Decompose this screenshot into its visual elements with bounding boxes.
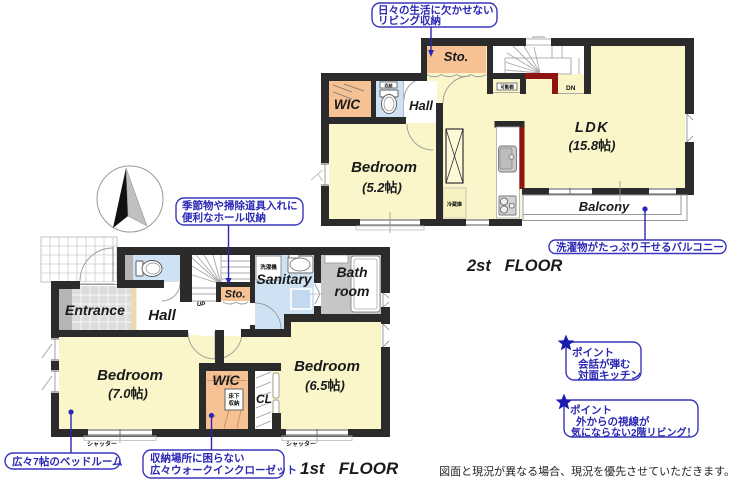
svg-text:外からの視線が: 外からの視線が [575,415,650,428]
svg-text:収納: 収納 [228,399,240,407]
svg-text:Sto.: Sto. [444,49,469,64]
svg-text:Bedroom: Bedroom [294,358,360,375]
svg-text:気にならない2階リビング！: 気にならない2階リビング！ [570,426,697,439]
svg-text:(7.0帖): (7.0帖) [108,386,148,401]
svg-text:広々7帖のベッドルーム: 広々7帖のベッドルーム [12,455,123,468]
svg-text:DN: DN [566,85,576,92]
svg-text:LDK: LDK [575,120,609,136]
svg-text:(6.5帖): (6.5帖) [305,378,345,393]
svg-text:季節物や掃除道具入れに: 季節物や掃除道具入れに [181,199,298,212]
svg-text:シャッター: シャッター [286,440,316,448]
svg-text:2st FLOOR: 2st FLOOR [466,257,562,275]
svg-text:洗濯機: 洗濯機 [260,263,277,271]
svg-text:1st FLOOR: 1st FLOOR [300,459,399,478]
svg-text:Bath: Bath [336,264,367,280]
svg-text:Sanitary: Sanitary [256,271,312,287]
svg-text:Bedroom: Bedroom [351,159,417,176]
svg-text:対面キッチン: 対面キッチン [577,369,641,382]
svg-text:Hall: Hall [409,98,433,113]
svg-text:シャッター: シャッター [87,440,117,448]
svg-text:Balcony: Balcony [579,199,630,214]
svg-text:広々ウォークインクローゼット: 広々ウォークインクローゼット [150,464,297,477]
svg-text:冷蔵庫: 冷蔵庫 [447,201,462,208]
svg-text:Entrance: Entrance [65,302,125,318]
svg-text:(5.2帖): (5.2帖) [362,180,402,195]
svg-text:Hall: Hall [148,307,176,324]
svg-text:ポイント: ポイント [570,404,612,417]
svg-text:床下: 床下 [228,392,240,400]
svg-text:図面と現況が異なる場合、現況を優先させていただきます。: 図面と現況が異なる場合、現況を優先させていただきます。 [439,464,735,478]
svg-text:可動棚: 可動棚 [500,84,514,91]
svg-text:UP: UP [197,302,206,308]
svg-text:Bedroom: Bedroom [97,367,163,384]
svg-text:収納場所に困らない: 収納場所に困らない [150,452,245,465]
svg-text:便利なホール収納: 便利なホール収納 [182,211,266,224]
svg-text:洗濯物がたっぷり干せるバルコニー: 洗濯物がたっぷり干せるバルコニー [556,241,724,254]
svg-text:(15.8帖): (15.8帖) [569,138,616,153]
svg-text:収納: 収納 [385,82,393,88]
svg-text:ポイント: ポイント [572,346,614,359]
svg-text:WIC: WIC [334,97,360,112]
svg-text:リビング収納: リビング収納 [378,14,441,27]
svg-text:Sto.: Sto. [225,289,246,301]
svg-text:WIC: WIC [212,372,240,388]
svg-text:CL: CL [256,392,272,406]
svg-text:room: room [335,283,370,299]
